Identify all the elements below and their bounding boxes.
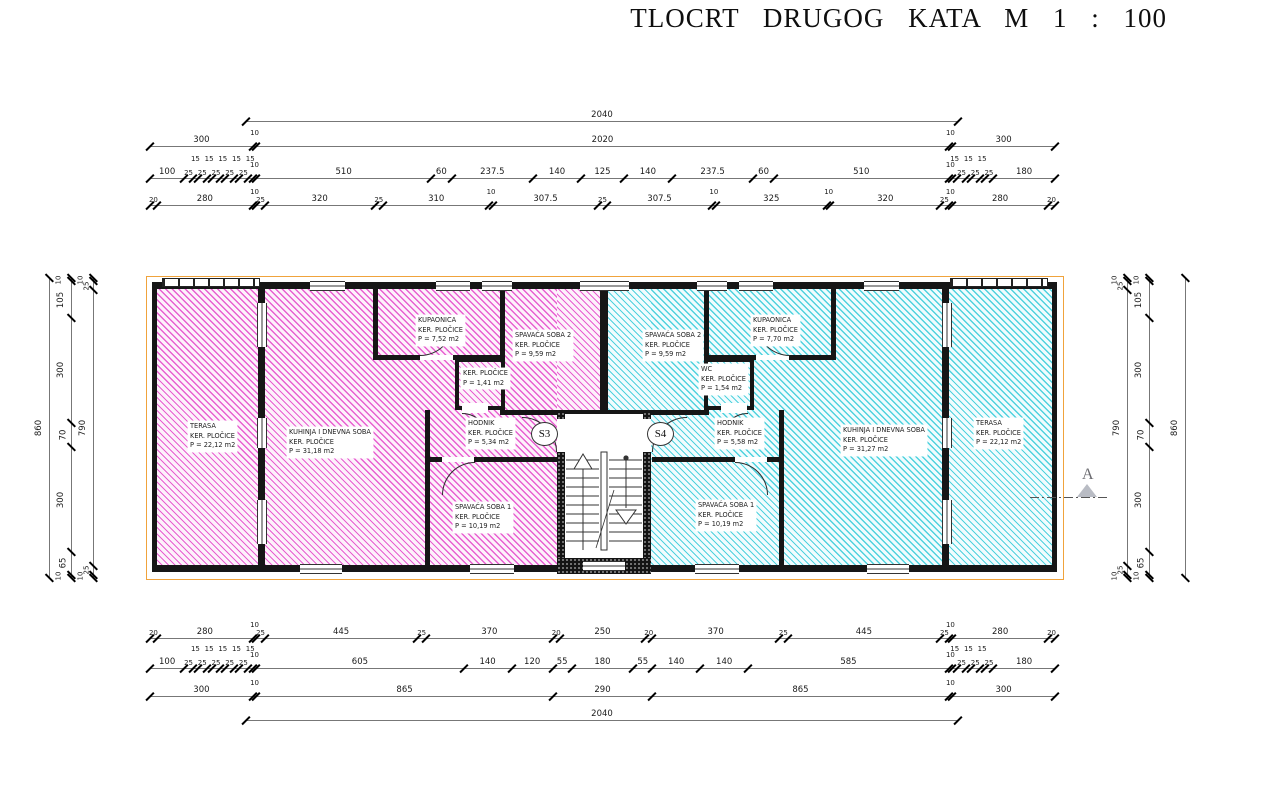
dimension-value: 15 <box>205 155 214 163</box>
dim-chain-right-2: 10105300703006510 <box>1134 278 1150 578</box>
dimension-value: 25 <box>417 629 426 637</box>
dimension-value: 15 <box>191 155 200 163</box>
dimension-value: 15 <box>978 155 987 163</box>
dimension-value: 100 <box>159 657 175 667</box>
dimension-value: 15 <box>950 645 959 653</box>
dim-chain-bottom-1: 2028010254452537020250203702544525102802… <box>150 623 1055 639</box>
dimension-value: 280 <box>992 627 1008 637</box>
dimension-value: 300 <box>995 685 1011 695</box>
dimension-value: 25 <box>984 169 993 177</box>
room-label-spavaca1-right: SPAVAĆA SOBA 1KER. PLOČICEP = 10,19 m2 <box>696 500 756 531</box>
dimension-value: 300 <box>1134 491 1144 507</box>
drawing-title: TLOCRT DRUGOG KATA M 1 : 100 <box>630 3 1167 34</box>
dimension-value: 25 <box>184 169 193 177</box>
dimension-value: 25 <box>212 659 221 667</box>
dimension-value: 60 <box>436 167 447 177</box>
dimension-value: 180 <box>1016 167 1032 177</box>
dimension-value: 15 <box>232 155 241 163</box>
dimension-value: 307.5 <box>647 194 671 204</box>
dimension-value: 25 <box>779 629 788 637</box>
dimension-value: 510 <box>336 167 352 177</box>
room-label-spavaca1-left: SPAVAĆA SOBA 1KER. PLOČICEP = 10,19 m2 <box>453 502 513 533</box>
dimension-value: 15 <box>191 645 200 653</box>
room-label-kuhinja-right: KUHINJA I DNEVNA SOBAKER. PLOČICEP = 31,… <box>841 425 927 456</box>
dimension-value: 15 <box>964 155 973 163</box>
dimension-value: 250 <box>594 627 610 637</box>
dimension-value: 860 <box>34 420 44 436</box>
wall-exterior-left <box>152 282 157 572</box>
dimension-value: 25 <box>225 659 234 667</box>
window-bottom-4 <box>867 564 909 574</box>
dimension-value: 15 <box>978 645 987 653</box>
window-bottom-3 <box>695 564 739 574</box>
dimension-value: 10 <box>77 572 85 581</box>
dimension-value: 55 <box>637 657 648 667</box>
door-gap-bath-left <box>420 355 453 360</box>
section-marker-triangle-icon <box>1077 484 1097 497</box>
stair-door-tag-s3: S3 <box>531 422 558 446</box>
dim-chain-bottom-overall: 2040 <box>246 705 958 721</box>
dimension-value: 25 <box>256 629 265 637</box>
door-gap-bed1-left <box>442 457 474 462</box>
dim-chain-right-3: 10257902510 <box>1112 278 1128 578</box>
dimension-value: 605 <box>352 657 368 667</box>
dimension-value: 25 <box>971 169 980 177</box>
window-top-center <box>580 281 629 291</box>
dimension-value: 2040 <box>591 110 613 120</box>
dimension-value: 25 <box>239 659 248 667</box>
dimension-value: 25 <box>198 169 207 177</box>
dimension-value: 10 <box>1133 572 1141 581</box>
window-top-6 <box>864 281 899 291</box>
dimension-value: 60 <box>758 167 769 177</box>
dimension-value: 120 <box>524 657 540 667</box>
room-label-spavaca2-right: SPAVAĆA SOBA 2KER. PLOČICEP = 9,59 m2 <box>643 330 703 361</box>
wall-bed1-left <box>425 457 430 567</box>
dimension-value: 25 <box>940 629 949 637</box>
dimension-value: 300 <box>1134 362 1144 378</box>
door-gap-bath-right <box>756 355 789 360</box>
dimension-value: 445 <box>333 627 349 637</box>
balustrade-left-terrace <box>162 278 260 287</box>
wall-bath-left-1 <box>373 284 378 360</box>
window-west-1 <box>257 303 267 347</box>
dimension-value: 237.5 <box>480 167 504 177</box>
window-top-2 <box>436 281 470 291</box>
dimension-value: 25 <box>374 196 383 204</box>
stair-door-gap-left <box>557 419 565 452</box>
dimension-value: 300 <box>56 491 66 507</box>
dimension-value: 300 <box>193 135 209 145</box>
dim-chain-top-3: 100251525152515251525151051060237.514012… <box>150 163 1055 179</box>
dimension-value: 180 <box>1016 657 1032 667</box>
dim-chain-bottom-2: 1002515251525152515251510605140120551805… <box>150 653 1055 669</box>
balustrade-right-terrace <box>950 278 1048 287</box>
dimension-value: 25 <box>957 169 966 177</box>
dimension-value: 70 <box>59 430 69 441</box>
dimension-value: 300 <box>56 362 66 378</box>
room-label-kupaonica-right: KUPAONICAKER. PLOČICEP = 7,70 m2 <box>751 315 800 346</box>
dimension-value: 585 <box>840 657 856 667</box>
wall-hall-right <box>779 410 784 462</box>
dimension-value: 25 <box>184 659 193 667</box>
dimension-value: 15 <box>232 645 241 653</box>
dimension-value: 25 <box>598 196 607 204</box>
room-label-hodnik-right: HODNIKKER. PLOČICEP = 5,58 m2 <box>715 418 764 449</box>
dimension-value: 10 <box>1111 572 1119 581</box>
window-top-3 <box>482 281 512 291</box>
room-label-kupaonica-left: KUPAONICAKER. PLOČICEP = 7,52 m2 <box>416 315 465 346</box>
dim-chain-top-overall: 2040 <box>246 106 958 122</box>
dimension-value: 140 <box>668 657 684 667</box>
wall-bath-right-1 <box>831 284 836 360</box>
window-west-3 <box>257 500 267 544</box>
window-bottom-1 <box>300 564 342 574</box>
dim-chain-left-2: 10105300703006510 <box>56 278 72 578</box>
dimension-value: 790 <box>1112 420 1122 436</box>
dimension-value: 55 <box>557 657 568 667</box>
window-east-1 <box>942 303 952 347</box>
window-bottom-2 <box>470 564 514 574</box>
dimension-value: 2040 <box>591 709 613 719</box>
dimension-value: 140 <box>640 167 656 177</box>
dimension-value: 65 <box>59 558 69 569</box>
stair-door-tag-s4: S4 <box>647 422 674 446</box>
window-top-4 <box>697 281 727 291</box>
dimension-value: 370 <box>481 627 497 637</box>
dimension-value: 790 <box>78 420 88 436</box>
room-label-terasa-left: TERASAKER. PLOČICEP = 22,12 m2 <box>188 421 237 452</box>
dim-chain-top-4: 2028010253202531010307.525307.5103251032… <box>150 190 1055 206</box>
dimension-value: 237.5 <box>700 167 724 177</box>
dimension-value: 125 <box>594 167 610 177</box>
stair-window <box>583 561 625 571</box>
room-label-kuhinja-left: KUHINJA I DNEVNA SOBAKER. PLOČICEP = 31,… <box>287 427 373 458</box>
floor-plan-drawing: TLOCRT DRUGOG KATA M 1 : 100 2040 300102… <box>0 0 1273 797</box>
dimension-value: 180 <box>594 657 610 667</box>
dim-chain-left-3: 10257902510 <box>78 278 94 578</box>
dim-chain-bottom-3: 3001086529086510300 <box>150 681 1055 697</box>
room-label-hodnik-left: HODNIKKER. PLOČICEP = 5,34 m2 <box>466 418 515 449</box>
room-label-wc-left: KER. PLOČICEP = 1,41 m2 <box>461 368 510 389</box>
dimension-value: 300 <box>995 135 1011 145</box>
dimension-value: 15 <box>964 645 973 653</box>
dimension-value: 510 <box>853 167 869 177</box>
window-top-1 <box>310 281 345 291</box>
window-top-5 <box>739 281 773 291</box>
window-east-3 <box>942 500 952 544</box>
room-label-spavaca2-left: SPAVAĆA SOBA 2KER. PLOČICEP = 9,59 m2 <box>513 330 573 361</box>
dimension-value: 865 <box>792 685 808 695</box>
dimension-value: 445 <box>856 627 872 637</box>
dimension-value: 310 <box>428 194 444 204</box>
dimension-value: 280 <box>992 194 1008 204</box>
dimension-value: 15 <box>205 645 214 653</box>
dimension-value: 25 <box>256 196 265 204</box>
dimension-value: 20 <box>1047 629 1056 637</box>
section-marker-label: A <box>1082 466 1094 484</box>
dimension-value: 25 <box>957 659 966 667</box>
dimension-value: 15 <box>218 155 227 163</box>
dimension-value: 2020 <box>592 135 614 145</box>
wall-exterior-right <box>1052 282 1057 572</box>
dimension-value: 15 <box>950 155 959 163</box>
dim-chain-top-2: 30010202010300 <box>150 131 1055 147</box>
dimension-value: 25 <box>239 169 248 177</box>
dimension-value: 15 <box>218 645 227 653</box>
dimension-value: 865 <box>396 685 412 695</box>
room-label-terasa-right: TERASAKER. PLOČICEP = 22,12 m2 <box>974 418 1023 449</box>
dim-chain-left-overall: 860 <box>34 278 50 578</box>
dimension-value: 370 <box>708 627 724 637</box>
stair-flight-symbol <box>566 452 642 558</box>
dimension-value: 25 <box>971 659 980 667</box>
dimension-value: 100 <box>159 167 175 177</box>
dimension-value: 280 <box>197 627 213 637</box>
dimension-value: 320 <box>312 194 328 204</box>
section-line <box>1030 497 1108 498</box>
dimension-value: 25 <box>225 169 234 177</box>
dimension-value: 25 <box>940 196 949 204</box>
dim-chain-right-overall: 860 <box>1170 278 1186 578</box>
dimension-value: 300 <box>193 685 209 695</box>
dimension-value: 325 <box>763 194 779 204</box>
wall-hall-left <box>425 410 430 462</box>
dimension-value: 140 <box>716 657 732 667</box>
dimension-value: 290 <box>594 685 610 695</box>
dimension-value: 105 <box>1134 292 1144 308</box>
dimension-value: 320 <box>877 194 893 204</box>
dimension-value: 140 <box>479 657 495 667</box>
door-gap-wc-left <box>462 403 488 413</box>
door-gap-bed1-right <box>735 457 767 462</box>
dimension-value: 70 <box>1137 430 1147 441</box>
dimension-value: 20 <box>1047 196 1056 204</box>
dimension-value: 25 <box>198 659 207 667</box>
window-east-2 <box>942 418 952 448</box>
wall-bed1-right <box>779 457 784 567</box>
window-west-2 <box>257 418 267 448</box>
dimension-value: 860 <box>1170 420 1180 436</box>
dimension-value: 10 <box>55 572 63 581</box>
dimension-value: 105 <box>56 292 66 308</box>
dimension-value: 307.5 <box>533 194 557 204</box>
wall-party <box>600 284 608 412</box>
dimension-value: 65 <box>1137 558 1147 569</box>
room-label-wc-right: WCKER. PLOČICEP = 1,54 m2 <box>699 364 748 395</box>
door-gap-wc-right <box>721 403 747 413</box>
dimension-value: 140 <box>549 167 565 177</box>
dimension-value: 25 <box>985 659 994 667</box>
dimension-value: 280 <box>197 194 213 204</box>
dimension-value: 25 <box>212 169 221 177</box>
